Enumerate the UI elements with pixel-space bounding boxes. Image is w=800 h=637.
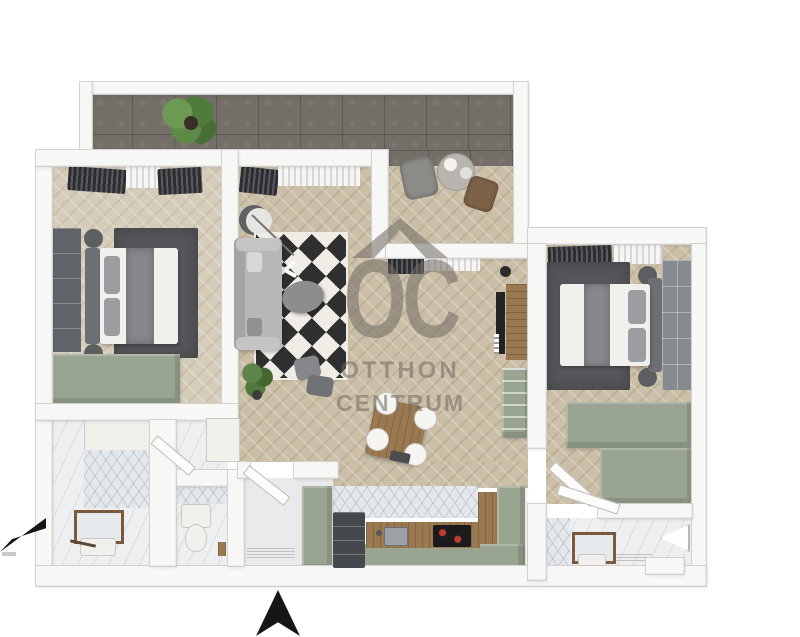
kitchen-floor <box>333 462 528 488</box>
bedroom1-blanket <box>126 248 154 344</box>
bedroom1-stool-top <box>84 229 103 248</box>
bedroom1-wardrobe <box>53 228 81 352</box>
bathroom1-cabinet <box>84 420 152 452</box>
fine-print-smudge <box>2 552 16 556</box>
wc-marble-wall <box>177 486 228 504</box>
bedroom2-pillow-2 <box>628 328 646 362</box>
wc-brush-holder <box>218 542 226 556</box>
dining-chair <box>375 392 398 415</box>
wall-living-bedroom2-upper <box>528 244 546 448</box>
bathroom1-sink <box>80 538 116 556</box>
bedroom1-pillow-2 <box>104 298 120 336</box>
living-curtain <box>239 166 280 196</box>
bathroom1-marble-wall <box>84 450 150 508</box>
wall-outer-bottom <box>36 566 706 586</box>
living-sheer-curtain <box>278 164 360 186</box>
terrace-parapet-top <box>80 82 518 94</box>
media-green-cabinet <box>502 368 530 438</box>
bedroom1-dresser <box>52 354 180 404</box>
bedroom2-pillow <box>628 290 646 324</box>
entrance-arrow-icon <box>256 590 300 636</box>
wall-top-left <box>36 150 388 166</box>
living-floor-cushion-2 <box>306 374 335 398</box>
wall-living-bedroom2-lower <box>528 504 546 580</box>
bedroom1-bed-headboard <box>85 248 100 344</box>
terrace-plant-pot <box>184 116 198 130</box>
bathroom2-marble-wall <box>546 518 570 566</box>
hall-doormat <box>247 548 295 560</box>
kitchen-faucet <box>376 530 382 536</box>
dining-chair-3 <box>366 428 389 451</box>
terrace-table-plate-2 <box>460 167 472 179</box>
kitchen-sink <box>384 527 408 546</box>
wall-outer-left <box>36 150 52 580</box>
media-knobs <box>494 334 499 354</box>
toilet-bowl <box>185 524 207 552</box>
terrace-parapet-right <box>514 82 528 244</box>
living-sofa-armrest-top <box>236 238 280 251</box>
bedroom1-curtain-2 <box>157 167 202 195</box>
bedroom1-sheer-curtain <box>126 166 160 188</box>
hall-green-wardrobe <box>302 486 332 570</box>
terrace-table-plate <box>444 158 457 171</box>
kitchen-counter-wood-right <box>478 492 498 550</box>
wall-terrace-jog <box>372 150 388 258</box>
bedroom2-sheer-curtain <box>614 244 662 264</box>
bedroom1-pillow <box>104 256 120 294</box>
kitchen-cooktop <box>433 525 471 547</box>
terrace-door-curtain <box>388 258 424 274</box>
living-tall-cabinet <box>206 418 240 462</box>
bedroom1-curtain <box>67 166 127 194</box>
kitchen-fridge <box>333 512 365 568</box>
terrace-parapet-left <box>80 82 92 152</box>
floorplan-render: OC OTTHON CENTRUM <box>0 0 800 637</box>
living-sofa-pillow <box>247 252 262 272</box>
living-sofa-backrest <box>234 238 245 350</box>
living-sofa-armrest-bottom <box>236 337 280 350</box>
bedroom2-wall-panels <box>662 260 692 390</box>
media-wall-speaker <box>500 266 511 277</box>
wall-wc-hall <box>228 470 244 566</box>
bedroom2-wardrobe-side <box>600 448 692 504</box>
media-shelf <box>506 284 528 360</box>
living-sofa-pillow-2 <box>247 318 262 336</box>
living-plant-pot <box>252 390 262 400</box>
wall-outer-right <box>692 244 706 580</box>
dining-chair-2 <box>414 407 437 430</box>
bedroom2-wardrobe-top <box>566 402 692 448</box>
terrace-door-sheer <box>424 257 480 271</box>
wall-top-bedroom2 <box>528 228 706 244</box>
bathroom2-sink <box>578 554 606 566</box>
bedroom2-blanket <box>584 284 610 366</box>
bedroom2-bed-headboard <box>648 278 662 372</box>
wall-threshold-notch <box>646 558 684 574</box>
wall-below-terrace <box>386 244 546 258</box>
wall-hall-top <box>294 462 338 478</box>
terrace-floor <box>90 92 514 152</box>
